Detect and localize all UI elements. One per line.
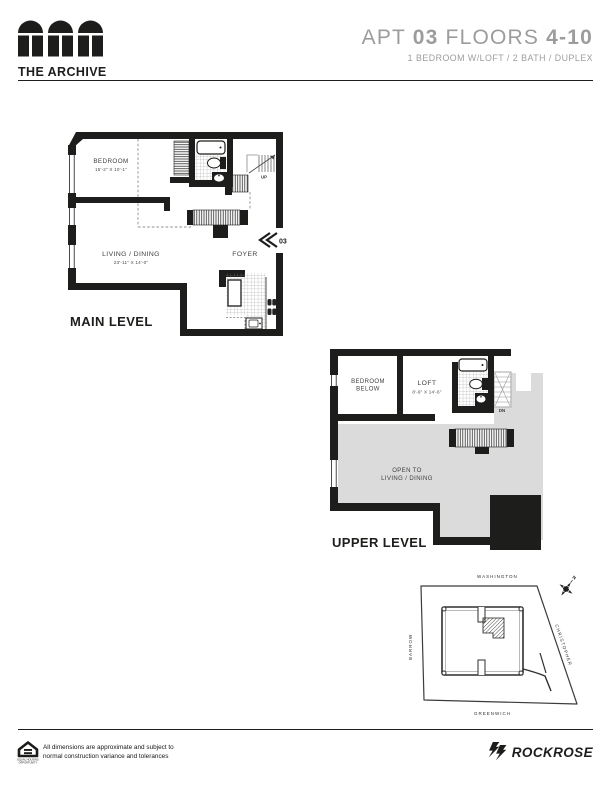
equal-housing-icon: EQUAL HOUSING OPPORTUNITY: [17, 740, 39, 766]
building-wing: [523, 669, 551, 691]
loft-label: LOFT: [418, 380, 437, 387]
main-level-floorplan: UP: [30, 105, 320, 355]
apartment-location-marker: [483, 618, 504, 638]
main-bathroom: [195, 141, 227, 184]
archive-windows-icon: [18, 20, 104, 58]
street-greenwich: GREENWICH: [474, 711, 511, 716]
bedroom-dims: 15'-2" X 10'-1": [95, 167, 127, 172]
stairs-up-label: UP: [261, 175, 267, 180]
tub-faucet-icon: [220, 147, 222, 149]
unit-number-label: 03: [279, 239, 287, 246]
upper-bathroom: [458, 359, 488, 406]
footer-divider: [18, 729, 593, 730]
bedroom-closet-icon: [174, 141, 189, 175]
stairs-down-label: DN: [499, 408, 505, 413]
bedroom-below-label-2: BELOW: [356, 387, 380, 393]
disclaimer-text: All dimensions are approximate and subje…: [43, 743, 174, 761]
street-washington: WASHINGTON: [477, 574, 518, 579]
floors-range: 4-10: [546, 26, 593, 49]
hall-closet-icon: [187, 210, 248, 238]
rockrose-bolts-icon: [487, 741, 509, 763]
compass-north-label: N: [571, 575, 577, 581]
stairs-up: UP: [247, 155, 275, 180]
unit-entry-marker: 03: [260, 233, 287, 247]
window-icon: [70, 155, 75, 268]
living-dining-label: LIVING / DINING: [102, 251, 160, 258]
disclaimer-line-2: normal construction variance and toleran…: [43, 752, 174, 761]
rockrose-logo-text: ROCKROSE: [512, 745, 593, 760]
equal-housing-logo: EQUAL HOUSING OPPORTUNITY: [17, 740, 39, 771]
open-to-label-2: LIVING / DINING: [381, 476, 433, 482]
header-divider: [18, 80, 593, 81]
toilet-tank-icon: [482, 378, 488, 390]
page-title: APT 03 FLOORS 4-10: [362, 26, 593, 50]
foyer-label: FOYER: [232, 251, 257, 258]
upper-level-floorplan: DN: [320, 340, 560, 560]
roof-notch: [516, 373, 531, 391]
archive-logo: THE ARCHIVE: [18, 20, 107, 79]
apt-label: APT: [362, 26, 406, 49]
loft-dims: 8'-9" X 14'-6": [412, 390, 441, 395]
toilet-icon: [470, 379, 483, 389]
kitchen: [226, 273, 276, 329]
site-map: N WASHINGTON BARROW CHRISTOPHER GREENWIC…: [395, 565, 612, 730]
tub-faucet-icon: [482, 364, 484, 366]
courtyard-notch-bottom: [478, 660, 485, 675]
living-dining-dims: 23'-11" X 14'-0": [114, 260, 149, 265]
header-title-block: APT 03 FLOORS 4-10 1 BEDROOM W/LOFT / 2 …: [362, 26, 593, 63]
bedroom-below-label-1: BEDROOM: [351, 379, 385, 385]
entry-chevrons-icon: [260, 233, 277, 247]
page-subtitle: 1 BEDROOM W/LOFT / 2 BATH / DUPLEX: [362, 53, 593, 63]
eho-text-2: OPPORTUNITY: [19, 761, 38, 765]
apt-number: 03: [413, 26, 439, 49]
upper-level-title: UPPER LEVEL: [332, 535, 427, 550]
refrigerator-icon: [228, 280, 241, 306]
compass-icon: N: [555, 571, 582, 600]
disclaimer-line-1: All dimensions are approximate and subje…: [43, 743, 174, 752]
foyer-closet-icon: [232, 175, 248, 192]
stairs-down: DN: [494, 372, 511, 413]
rockrose-brand: ROCKROSE: [487, 741, 593, 763]
open-to-label-1: OPEN TO: [392, 468, 422, 474]
toilet-icon: [208, 158, 221, 168]
floors-label: FLOORS: [446, 26, 540, 49]
city-block-outline: [421, 586, 577, 704]
bedroom-label: BEDROOM: [93, 158, 128, 165]
main-level-title: MAIN LEVEL: [70, 314, 153, 329]
floorplan-page: THE ARCHIVE APT 03 FLOORS 4-10 1 BEDROOM…: [0, 0, 612, 792]
archive-logo-text: THE ARCHIVE: [18, 65, 107, 79]
street-barrow: BARROW: [408, 634, 413, 660]
